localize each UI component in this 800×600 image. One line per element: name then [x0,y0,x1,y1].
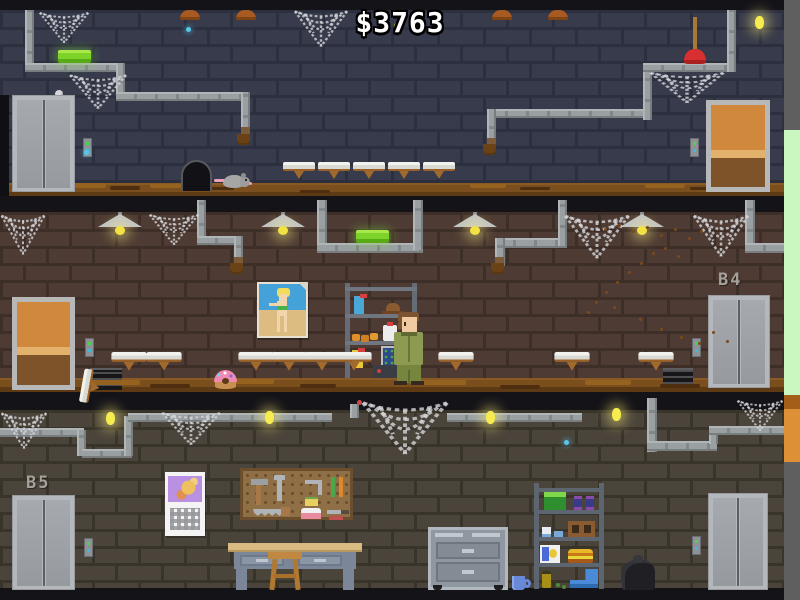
firefly[interactable] [486,411,495,424]
tool-cabinet[interactable] [428,527,508,590]
nuggets [352,334,360,341]
floor-strip-bottom [0,588,784,600]
fly [688,237,691,240]
toilet[interactable] [111,352,146,385]
pipe [413,200,423,250]
toilet[interactable] [554,352,589,385]
pipe [124,416,133,456]
fly [660,234,663,237]
rat[interactable] [214,172,252,189]
trash-bag[interactable] [622,560,655,590]
dome-lamp-icon [180,10,200,20]
dome-lamp-icon [492,10,512,20]
floor-gap-1 [0,196,784,212]
glowing-green-brick[interactable] [58,50,91,63]
cobweb-icon [293,8,349,48]
leak-stain [230,263,243,272]
toilet[interactable] [318,162,350,192]
call-button[interactable] [84,538,93,557]
player-character[interactable] [393,312,425,385]
call-button[interactable] [692,338,701,357]
toilet[interactable] [336,352,371,385]
cobweb-icon [160,410,222,446]
right-strip-green [784,130,800,395]
stool[interactable] [268,552,302,590]
wood-door-middle-left[interactable] [12,297,75,390]
leak-stain [483,144,496,153]
cobweb-icon [68,72,128,110]
left-shaft-wall [0,95,9,196]
firefly[interactable] [564,440,569,445]
fly [674,228,677,231]
call-button[interactable] [85,338,94,357]
toilet[interactable] [146,352,181,385]
fly [726,340,729,343]
spray-bottle-blue [354,296,364,314]
fly [587,311,590,314]
pipe [317,243,423,253]
pipe [25,63,125,72]
toilet[interactable] [638,352,673,385]
cobweb-icon [648,70,726,104]
fly [604,228,607,231]
dirt-patch [110,186,140,190]
firefly[interactable] [755,16,764,29]
green-box [544,492,566,510]
firefly[interactable] [357,400,362,405]
firefly[interactable] [612,408,621,421]
thread-spool [574,496,582,510]
fly [712,331,715,334]
donut[interactable] [214,370,237,389]
toilet[interactable] [353,162,385,192]
mouse-hole [181,160,212,191]
dirt-patch [645,184,685,188]
pinup-calendar[interactable] [165,472,205,536]
pipe [495,238,567,248]
ceiling-lamp-icon [453,212,497,238]
firefly[interactable] [84,150,89,155]
cup [542,527,551,537]
storage-shelf[interactable] [534,483,604,589]
fly [698,342,701,345]
toilet[interactable] [438,352,473,385]
fly [618,224,621,227]
pinup-poster[interactable] [257,282,308,338]
right-strip-gray-top [784,0,800,130]
dirt-patch [500,385,540,389]
fly [680,336,683,339]
leak-stain [491,263,504,272]
fly [660,328,663,331]
mug[interactable] [512,574,531,590]
leak-stain [237,134,250,143]
plunger[interactable] [684,17,706,64]
screwdriver-icon [339,477,343,497]
fly [639,318,642,321]
green-beads [556,583,560,587]
fly [613,306,616,309]
pipe [116,92,250,101]
fly [632,230,635,233]
right-strip-gray-bottom [784,462,800,600]
fly [652,252,655,255]
cobweb-icon [736,398,784,432]
bottle [542,571,551,588]
toilet[interactable] [271,352,306,385]
blue-boot [570,569,598,588]
blue-item [554,531,563,537]
tool-pegboard[interactable] [240,468,353,520]
fly [616,281,619,284]
right-strip-orange [784,395,800,462]
hat [386,303,400,311]
cobweb-icon [148,212,200,246]
call-button[interactable] [690,138,699,157]
money-counter: $3763 [355,6,444,39]
pipe [647,441,717,451]
toilet[interactable] [304,352,339,385]
thread-spool [586,496,594,510]
dirt-patch [520,187,550,190]
pipe [727,10,736,72]
elevator-door-top-left[interactable] [12,95,75,192]
fly [646,226,649,229]
firefly[interactable] [106,412,115,425]
floor-label-b4: B4 [718,270,742,290]
cobweb-icon [0,212,46,256]
call-button[interactable] [692,536,701,555]
toilet[interactable] [423,162,455,192]
burger [568,549,593,563]
fly [628,271,631,274]
screwdriver-icon [331,477,335,497]
fly [595,301,598,304]
cobweb-icon [0,410,48,450]
ceiling-lamp-icon [261,212,305,238]
cobweb-icon [563,212,631,260]
toilet[interactable] [238,352,273,385]
cobweb-icon [692,212,750,258]
fly [700,230,703,233]
saw-icon [253,509,283,516]
pipe [128,413,332,422]
dirt-patch [470,184,506,188]
toilet[interactable] [388,162,420,192]
pipe [447,413,582,422]
pipe [487,109,652,118]
pipe [350,404,359,418]
dome-lamp-icon [548,10,568,20]
firefly[interactable] [265,411,274,424]
cobweb-icon [360,398,450,456]
toilet[interactable] [283,162,315,192]
fly [677,255,680,258]
fly [605,291,608,294]
floor-label-b5: B5 [26,473,50,493]
cobweb-icon [38,10,90,44]
toilet[interactable] [79,368,116,407]
dome-lamp-icon [236,10,256,20]
fly [664,247,667,250]
elevator-door-bottom-left[interactable] [12,495,75,590]
snack [305,497,318,506]
fly [640,262,643,265]
game-scene: B4 B5 [0,0,800,600]
elevator-door-bottom-right[interactable] [708,493,768,590]
dirt-patch [585,380,631,385]
glowing-green-brick[interactable] [356,230,389,243]
ceiling-lamp-icon [98,212,142,238]
wood-door-top-right[interactable] [706,100,770,192]
pipe [745,243,784,253]
elevator-door-middle-right[interactable] [708,295,770,388]
firefly[interactable] [186,27,191,32]
